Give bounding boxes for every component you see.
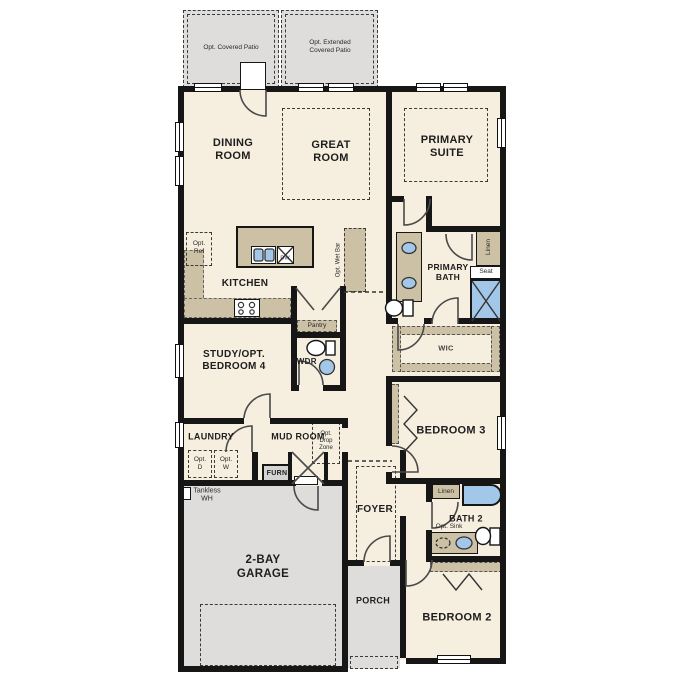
window bbox=[175, 156, 184, 186]
tankless-wh-label: Tankless WH bbox=[193, 488, 220, 505]
covered-patio-label: Opt. Covered Patio bbox=[203, 44, 258, 52]
bathtub bbox=[462, 484, 502, 506]
primary-suite-label: PRIMARY SUITE bbox=[421, 134, 473, 160]
wall-segment bbox=[458, 318, 506, 324]
wall-segment bbox=[432, 556, 506, 562]
patio-door-slab bbox=[240, 62, 266, 90]
wall-segment bbox=[346, 560, 364, 566]
wall-segment bbox=[400, 566, 406, 658]
wall-segment bbox=[500, 86, 506, 664]
opt-washer-label: Opt. W bbox=[220, 456, 232, 472]
primary-vanity bbox=[396, 232, 422, 302]
wall-segment bbox=[386, 92, 392, 232]
wic-shelf-right bbox=[491, 326, 500, 372]
seat-label: Seat bbox=[479, 268, 492, 276]
wall-segment bbox=[424, 318, 432, 324]
wall-segment bbox=[386, 382, 392, 446]
wall-segment bbox=[340, 286, 346, 391]
window bbox=[443, 83, 468, 92]
wic-shelf-left bbox=[392, 326, 401, 372]
wall-segment bbox=[291, 385, 299, 391]
island-sink-unit bbox=[251, 246, 276, 264]
bath2-vanity bbox=[430, 532, 478, 554]
garage-service-door-slab bbox=[294, 476, 318, 485]
wall-segment bbox=[323, 385, 346, 391]
window bbox=[497, 416, 506, 450]
primary-linen-label: Linen bbox=[485, 239, 493, 255]
shower bbox=[470, 279, 502, 323]
wic-label: WIC bbox=[438, 344, 453, 353]
wic-shelf-bottom bbox=[392, 363, 500, 372]
wall-segment bbox=[270, 418, 346, 424]
great-room-label: GREAT ROOM bbox=[311, 139, 350, 165]
primary-bath-label: PRIMARY BATH bbox=[428, 262, 469, 282]
wall-segment bbox=[178, 480, 296, 486]
bedroom2-closet-shelf bbox=[430, 562, 502, 572]
window bbox=[298, 83, 324, 92]
opt-ref-label: Opt. Ref bbox=[193, 240, 205, 256]
wall-segment bbox=[400, 516, 406, 566]
extended-patio-label: Opt. Extended Covered Patio bbox=[309, 39, 351, 55]
bedroom2-label: BEDROOM 2 bbox=[422, 611, 491, 624]
foyer-label: FOYER bbox=[357, 504, 393, 516]
opt-wet-bar-label: Opt. Wet Bar bbox=[335, 243, 342, 278]
window bbox=[175, 344, 184, 378]
wall-segment bbox=[386, 318, 398, 324]
range bbox=[234, 299, 260, 317]
wall-segment bbox=[386, 376, 506, 382]
window bbox=[175, 122, 184, 152]
garage-label: 2-BAY GARAGE bbox=[237, 554, 289, 582]
wall-segment bbox=[342, 418, 348, 428]
pantry-label: Pantry bbox=[308, 322, 327, 330]
porch-step-outline bbox=[350, 656, 398, 669]
wic-shelf-top bbox=[392, 326, 500, 335]
wall-segment bbox=[426, 484, 432, 502]
dishwasher-label: DW bbox=[280, 256, 289, 263]
wall-segment bbox=[178, 666, 348, 672]
wall-segment bbox=[291, 332, 340, 338]
bath2-linen-label: Linen bbox=[438, 488, 454, 496]
window bbox=[175, 422, 184, 448]
wall-segment bbox=[288, 452, 292, 484]
opt-wet-bar-counter bbox=[344, 228, 366, 292]
wall-segment bbox=[178, 318, 291, 324]
opt-sink-label: Opt. Sink bbox=[436, 523, 463, 531]
bedroom3-label: BEDROOM 3 bbox=[416, 424, 485, 437]
wall-segment bbox=[178, 418, 244, 424]
opt-dryer-label: Opt. D bbox=[194, 456, 206, 472]
garage-door-outline bbox=[200, 604, 336, 666]
window bbox=[328, 83, 354, 92]
dining-room-label: DINING ROOM bbox=[213, 137, 253, 163]
laundry-label: LAUNDRY bbox=[188, 432, 234, 443]
mud-room-label: MUD ROOM bbox=[271, 432, 324, 443]
study-label: STUDY/OPT. BEDROOM 4 bbox=[202, 349, 265, 373]
floor-plan: Opt. Covered Patio Opt. Extended Covered… bbox=[0, 0, 687, 687]
opt-drop-zone-label: Opt. Drop Zone bbox=[319, 431, 333, 453]
wall-segment bbox=[342, 486, 348, 672]
wall-segment bbox=[386, 196, 404, 202]
wall-segment bbox=[432, 226, 506, 232]
furnace-label: FURN bbox=[267, 470, 288, 478]
kitchen-label: KITCHEN bbox=[222, 278, 269, 290]
wall-segment bbox=[386, 232, 392, 318]
tankless-water-heater bbox=[183, 487, 191, 500]
porch-label: PORCH bbox=[356, 596, 390, 607]
wall-segment bbox=[400, 450, 406, 484]
wall-segment bbox=[324, 452, 328, 484]
window bbox=[437, 655, 471, 664]
porch-floor bbox=[348, 566, 400, 668]
wall-segment bbox=[390, 560, 400, 566]
window bbox=[194, 83, 222, 92]
wall-segment bbox=[342, 452, 348, 486]
window bbox=[497, 118, 506, 148]
window bbox=[416, 83, 441, 92]
pwdr-label: PWDR bbox=[291, 357, 317, 367]
